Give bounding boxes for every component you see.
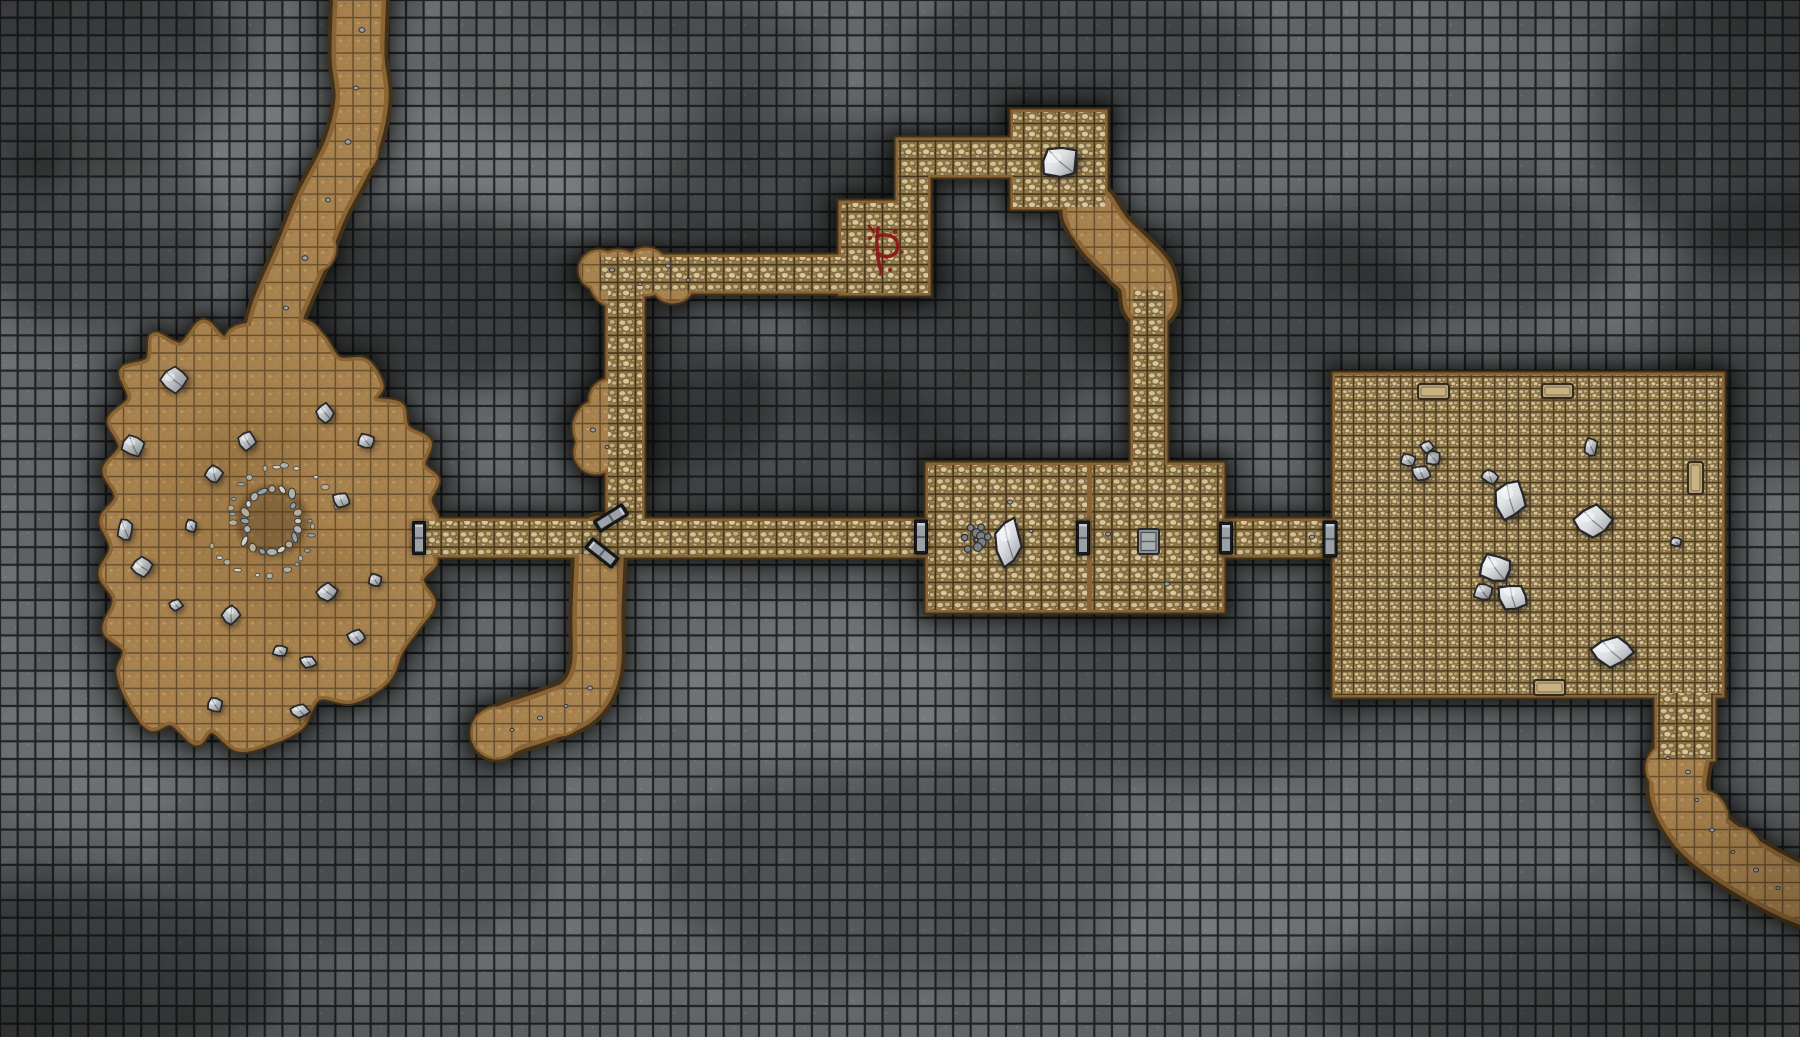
- vignette: [0, 0, 1800, 1037]
- dungeon-map-canvas: [0, 0, 1800, 1037]
- dungeon-map: [0, 0, 1800, 1037]
